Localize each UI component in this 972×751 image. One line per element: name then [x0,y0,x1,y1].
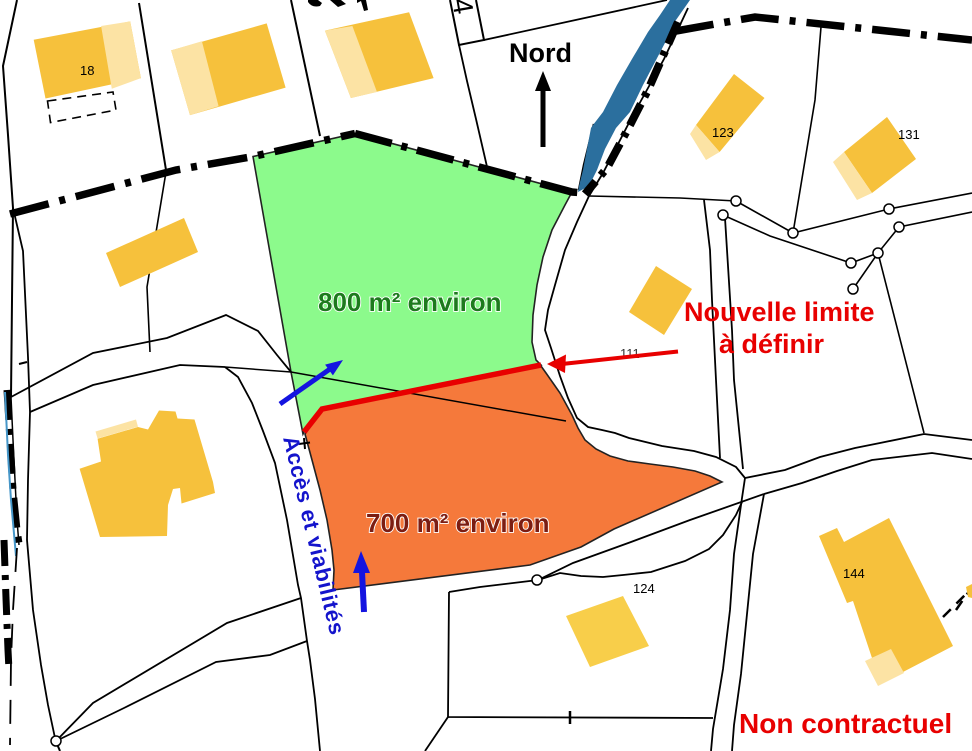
svg-text:Nord: Nord [509,38,572,68]
svg-text:123: 123 [712,125,734,140]
svg-text:131: 131 [898,127,920,142]
svg-text:700 m² environ: 700 m² environ [366,508,550,538]
svg-text:Nouvelle limite: Nouvelle limite [684,297,875,327]
svg-text:18: 18 [80,63,94,78]
svg-text:800 m² environ: 800 m² environ [318,287,502,317]
svg-text:Non contractuel: Non contractuel [739,708,952,739]
svg-text:144: 144 [843,566,865,581]
svg-text:124: 124 [633,581,655,596]
svg-text:à définir: à définir [719,329,825,359]
